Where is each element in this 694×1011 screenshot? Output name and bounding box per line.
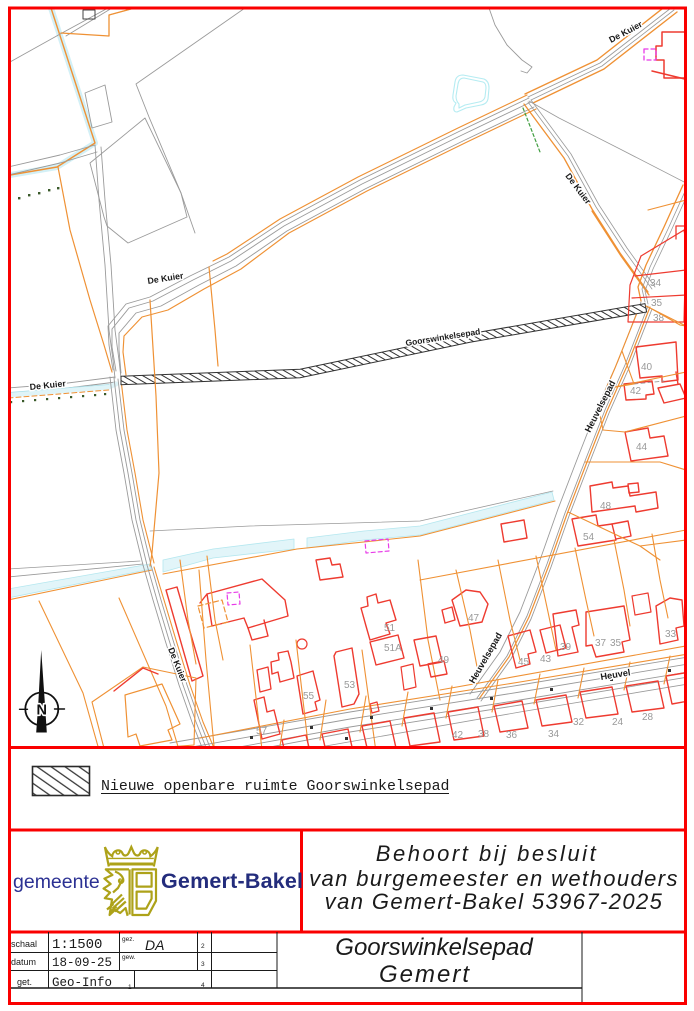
svg-text:schaal: schaal: [11, 939, 37, 949]
svg-text:3: 3: [201, 961, 205, 968]
svg-text:1:1500: 1:1500: [52, 937, 102, 953]
svg-text:datum: datum: [11, 957, 36, 967]
svg-text:34: 34: [650, 278, 662, 289]
svg-text:54: 54: [583, 532, 595, 543]
svg-text:DA: DA: [145, 937, 164, 953]
svg-text:Geo-Info: Geo-Info: [52, 976, 112, 990]
svg-text:24: 24: [612, 717, 624, 728]
svg-text:28: 28: [642, 712, 654, 723]
svg-text:34: 34: [548, 729, 560, 740]
svg-text:51A: 51A: [384, 643, 402, 654]
svg-text:Gemert-Bakel: Gemert-Bakel: [161, 869, 303, 893]
svg-text:get.: get.: [17, 977, 32, 987]
svg-text:gez.: gez.: [122, 936, 134, 943]
svg-text:33: 33: [665, 629, 677, 640]
svg-text:42: 42: [452, 730, 464, 741]
svg-text:32: 32: [573, 717, 585, 728]
svg-text:18-09-25: 18-09-25: [52, 956, 112, 970]
svg-text:35: 35: [610, 638, 622, 649]
svg-text:40: 40: [641, 362, 653, 373]
svg-text:gemeente: gemeente: [13, 871, 100, 893]
svg-text:55: 55: [303, 691, 315, 702]
svg-text:van Gemert-Bakel 53967-2025: van Gemert-Bakel 53967-2025: [325, 889, 664, 914]
svg-text:Nieuwe openbare ruimte Goorswi: Nieuwe openbare ruimte Goorswinkelsepad: [101, 779, 450, 795]
svg-text:35: 35: [651, 298, 663, 309]
svg-text:51: 51: [384, 623, 396, 634]
svg-text:Behoort bij besluit: Behoort bij besluit: [376, 841, 598, 866]
svg-text:4: 4: [201, 982, 205, 989]
svg-text:36: 36: [506, 730, 518, 741]
svg-text:57: 57: [256, 726, 268, 737]
svg-text:N: N: [36, 703, 46, 719]
svg-text:Gemert: Gemert: [379, 961, 471, 988]
svg-text:44: 44: [636, 442, 648, 453]
svg-text:Goorswinkelsepad: Goorswinkelsepad: [335, 934, 533, 961]
svg-text:42: 42: [630, 386, 642, 397]
svg-text:53: 53: [344, 680, 356, 691]
svg-text:47: 47: [468, 613, 480, 624]
svg-text:gew.: gew.: [122, 954, 136, 961]
svg-text:38: 38: [478, 729, 490, 740]
svg-text:1: 1: [128, 984, 132, 991]
svg-text:37: 37: [595, 638, 607, 649]
svg-text:van burgemeester en wethouders: van burgemeester en wethouders: [309, 866, 679, 891]
svg-text:39: 39: [560, 642, 572, 653]
svg-text:49: 49: [438, 655, 450, 666]
svg-text:48: 48: [600, 501, 612, 512]
svg-text:43: 43: [540, 654, 552, 665]
svg-text:2: 2: [201, 943, 205, 950]
